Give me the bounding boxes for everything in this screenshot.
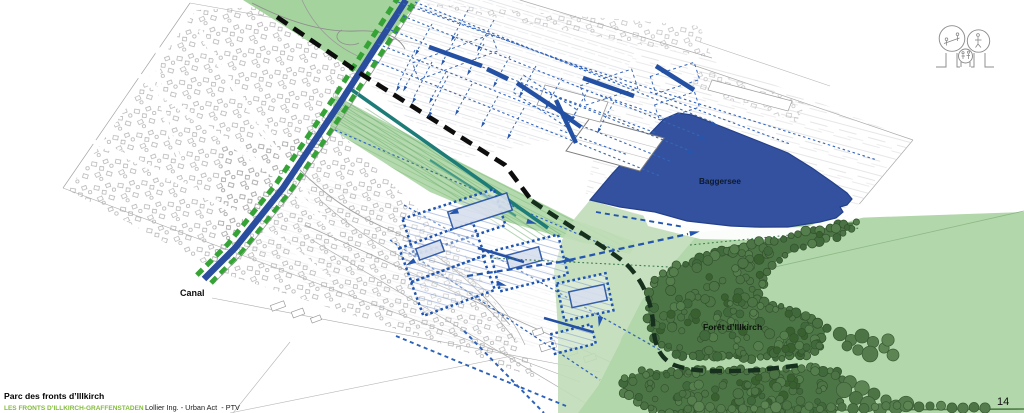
svg-text:Lollier Ing. - Urban Act - PT: Lollier Ing. - Urban Act - PTV [145,403,240,412]
svg-text:14: 14 [997,396,1009,408]
svg-text:Parc des fronts d’Illkirch: Parc des fronts d’Illkirch [4,391,104,401]
svg-text:LES FRONTS D’ILLKIRCH-GRAFFENS: LES FRONTS D’ILLKIRCH-GRAFFENSTADEN [4,405,144,412]
svg-text:Canal: Canal [180,288,205,298]
svg-text:Forêt d’Illkirch: Forêt d’Illkirch [703,322,762,332]
svg-text:Baggersee: Baggersee [699,177,741,186]
